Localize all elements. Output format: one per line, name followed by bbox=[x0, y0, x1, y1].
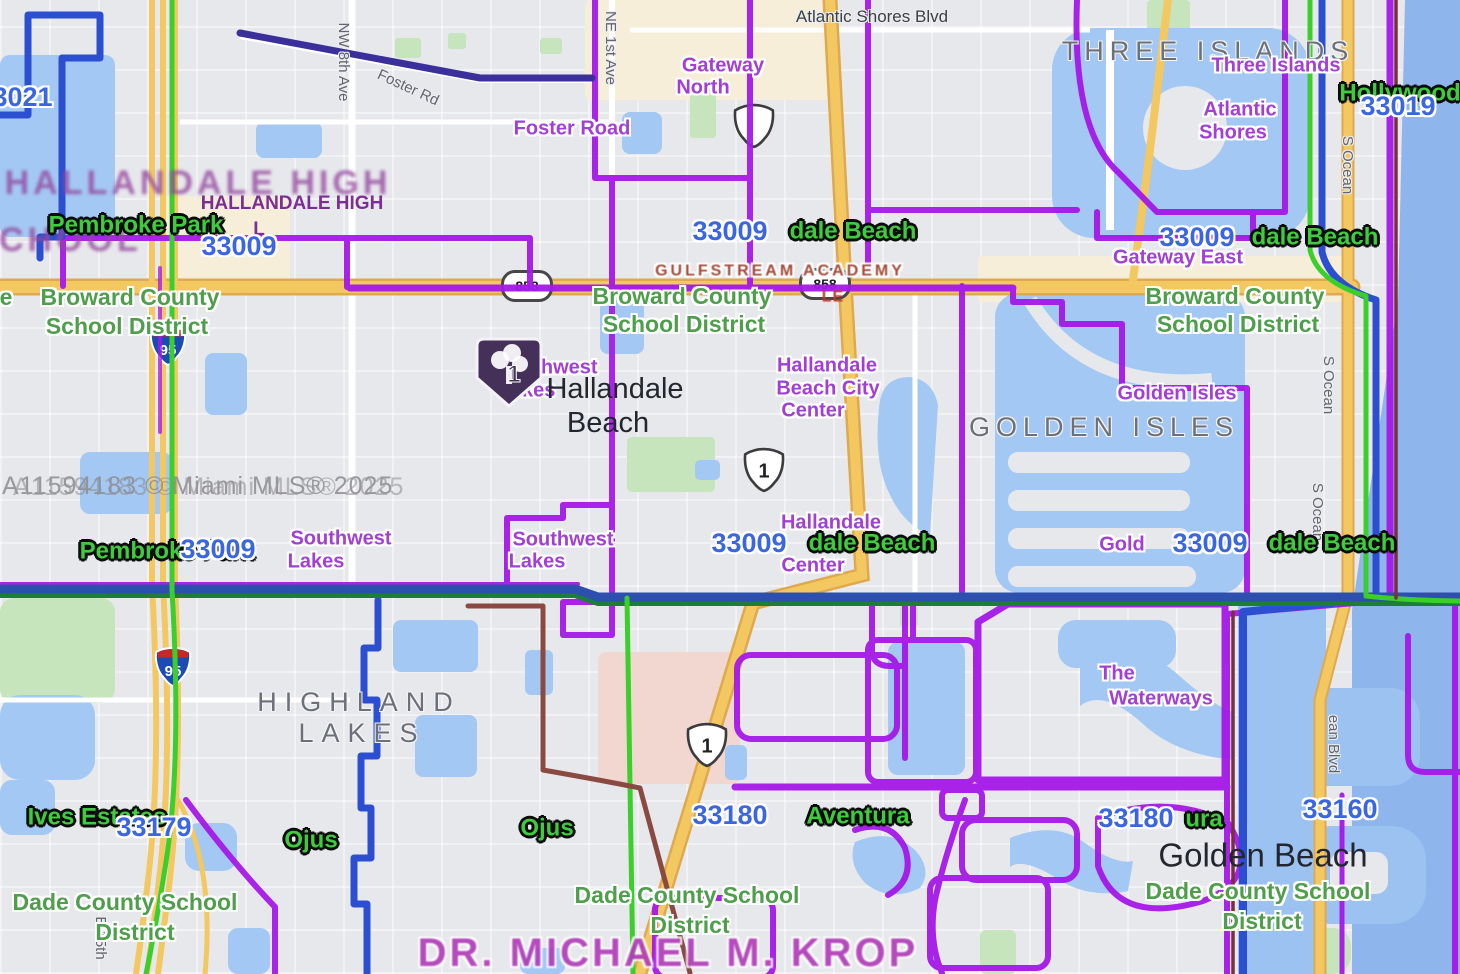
nbhd-label-southwest-1a: Southwest bbox=[290, 529, 391, 550]
nbhd-label-southwest-2b: Lakes bbox=[509, 552, 566, 573]
district-label-broward-3a: Broward County bbox=[1146, 284, 1325, 308]
road-label-ocean-blvd: ean Blvd bbox=[1325, 715, 1341, 773]
city-label-ojus-2: Ojus bbox=[520, 815, 573, 840]
nbhd-label-gateway-north-2: North bbox=[676, 78, 729, 99]
zip-label-33179: 33179 bbox=[116, 813, 191, 841]
nbhd-label-southwest-2a: Southwest bbox=[512, 530, 613, 551]
zip-label-33160: 33160 bbox=[1302, 795, 1377, 823]
zip-label-33009-a: 33009 bbox=[692, 217, 767, 245]
district-label-broward-1a: Broward County bbox=[41, 285, 220, 309]
city-label-hallandale-beach-frag-a: dale Beach bbox=[790, 218, 917, 243]
district-label-broward-3b: School District bbox=[1157, 312, 1319, 336]
school-label-michael-krop: DR. MICHAEL M. KROP bbox=[418, 932, 919, 974]
nbhd-label-waterways-1: The bbox=[1099, 664, 1135, 685]
road-label-atlantic-shores-blvd: Atlantic Shores Blvd bbox=[796, 8, 948, 26]
nbhd-label-waterways-2: Waterways bbox=[1109, 689, 1213, 710]
nbhd-label-foster-road: Foster Road bbox=[514, 119, 631, 140]
nbhd-label-golden-isles: Golden Isles bbox=[1118, 384, 1237, 405]
nbhd-label-atlantic-shores-1: Atlantic bbox=[1203, 100, 1276, 121]
area-label-highland-2: LAKES bbox=[298, 719, 425, 747]
map-canvas[interactable]: 858 858 1 1 95 95 bbox=[0, 0, 1460, 974]
road-label-s-ocean-1: S Ocean bbox=[1339, 136, 1355, 194]
city-label-hallandale-beach-1: Hallandale bbox=[546, 374, 683, 404]
mls-watermark: A11594183 © Miami MLS® 2025 bbox=[2, 472, 393, 501]
zip-label-33019: 33019 bbox=[1360, 92, 1435, 120]
zip-label-33009-d: 33009 bbox=[180, 535, 255, 563]
district-label-dade-2a: Dade County School bbox=[575, 883, 800, 907]
city-label-hallandale-beach-2: Beach bbox=[567, 408, 649, 438]
road-label-nw-8th-ave: NW 8th Ave bbox=[335, 23, 351, 102]
nbhd-label-three-islands: Three Islands bbox=[1212, 56, 1341, 77]
area-label-highland-1: HIGHLAND bbox=[257, 688, 461, 716]
zip-label-33021: 33021 bbox=[0, 83, 53, 111]
city-label-pembroke-park: Pembroke Park bbox=[49, 212, 224, 237]
district-label-dade-3b: District bbox=[1222, 909, 1301, 933]
district-label-dade-3a: Dade County School bbox=[1146, 879, 1371, 903]
district-label-broward-2b: School District bbox=[603, 312, 765, 336]
label-fragment-e: e bbox=[0, 285, 12, 309]
city-label-hallandale-beach-frag-b: dale Beach bbox=[1252, 224, 1379, 249]
city-label-hallandale-beach-frag-d: dale Beach bbox=[1269, 530, 1396, 555]
district-label-broward-2a: Broward County bbox=[593, 284, 772, 308]
nbhd-label-gold-frag: Gold bbox=[1099, 535, 1145, 556]
nbhd-label-hbcc-1: Hallandale bbox=[777, 356, 877, 377]
nbhd-label-gateway-north-1: Gateway bbox=[682, 56, 764, 77]
area-label-golden-isles: GOLDEN ISLES bbox=[969, 413, 1239, 441]
zip-label-33009-f: 33009 bbox=[1172, 529, 1247, 557]
city-label-ojus-1: Ojus bbox=[284, 827, 337, 852]
city-label-aventura: Aventura bbox=[806, 803, 909, 828]
city-label-golden-beach: Golden Beach bbox=[1158, 839, 1367, 874]
school-label-le-fragment: LE bbox=[822, 290, 844, 307]
nbhd-label-atlantic-shores-2: Shores bbox=[1199, 123, 1267, 144]
zip-label-33009-b: 33009 bbox=[1159, 223, 1234, 251]
area-label-hallandale-high-small: HALLANDALE HIGH bbox=[201, 194, 384, 214]
city-label-hallandale-beach-frag-c: dale Beach bbox=[809, 530, 936, 555]
road-label-ne-1st-ave: NE 1st Ave bbox=[602, 11, 618, 85]
district-label-dade-1b: District bbox=[95, 920, 174, 944]
district-label-broward-1b: School District bbox=[46, 314, 208, 338]
road-label-s-ocean-2: S Ocean bbox=[1320, 356, 1336, 414]
listing-cluster-marker[interactable]: 1 bbox=[474, 336, 544, 420]
zip-label-33180-b: 33180 bbox=[1098, 804, 1173, 832]
boundary-navy-foster-rd bbox=[240, 33, 592, 78]
zip-label-33180-a: 33180 bbox=[692, 801, 767, 829]
nbhd-label-center-frag: Center bbox=[781, 556, 844, 577]
zip-label-33009-c: 33009 bbox=[201, 232, 276, 260]
school-label-gulfstream-academy: GULFSTREAM ACADEMY bbox=[655, 264, 905, 281]
marker-count: 1 bbox=[507, 361, 520, 388]
district-label-dade-1a: Dade County School bbox=[13, 890, 238, 914]
nbhd-label-southwest-1b: Lakes bbox=[288, 552, 345, 573]
zip-label-33009-e: 33009 bbox=[711, 529, 786, 557]
city-label-aventura-frag: ura bbox=[1185, 806, 1222, 831]
nbhd-label-hbcc-2: Beach City bbox=[776, 379, 879, 400]
nbhd-label-hbcc-3: Center bbox=[781, 401, 844, 422]
